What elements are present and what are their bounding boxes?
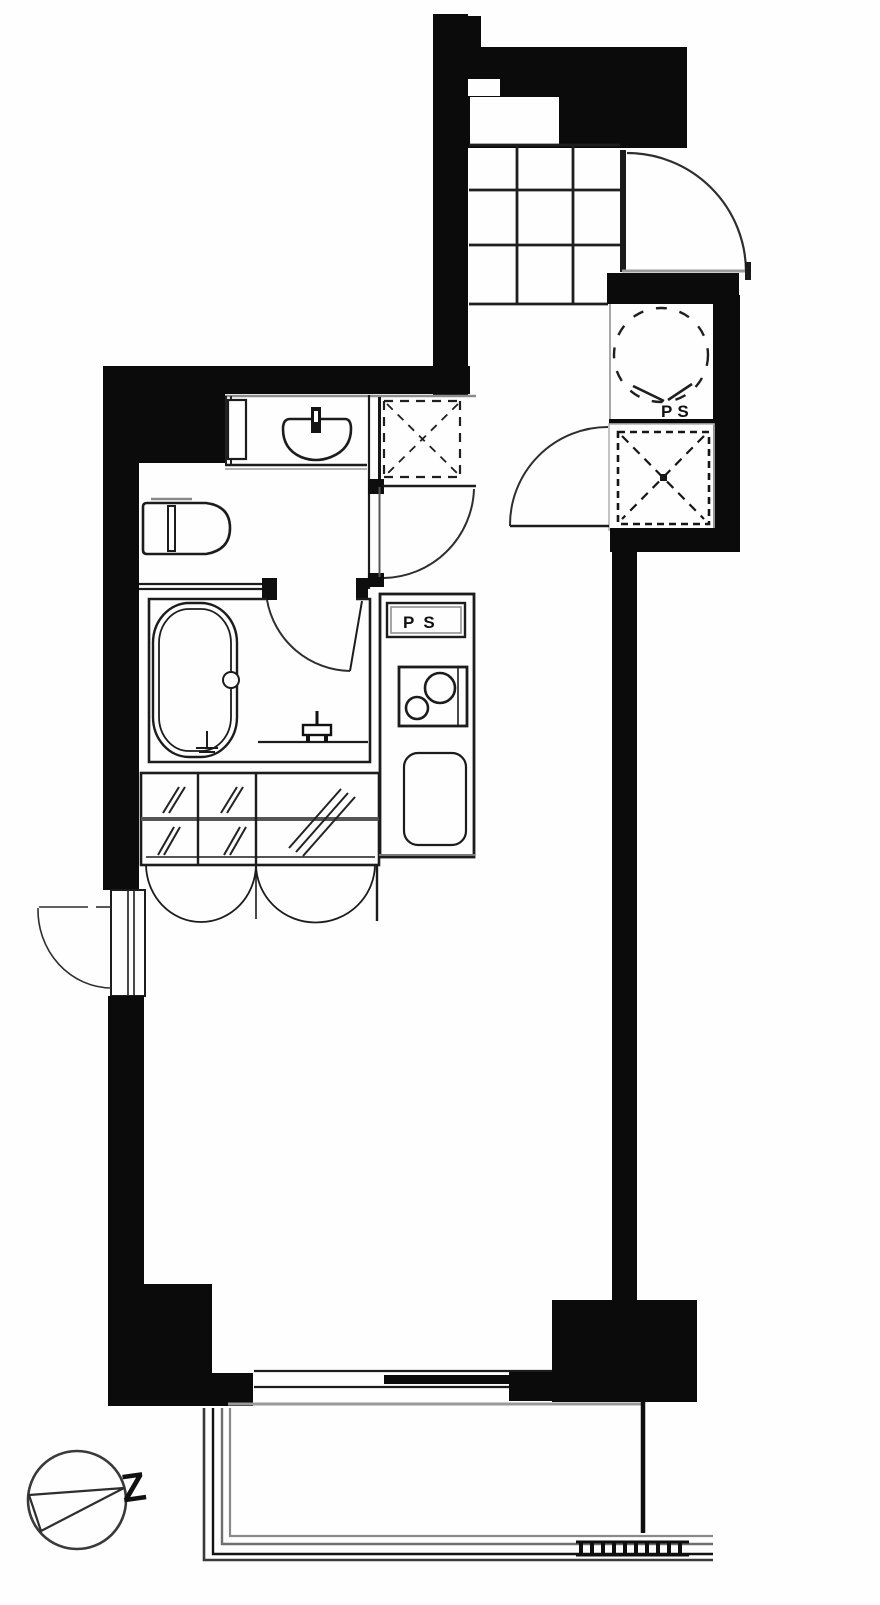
svg-text:PS: PS — [403, 613, 444, 632]
svg-text:PS: PS — [661, 402, 694, 421]
